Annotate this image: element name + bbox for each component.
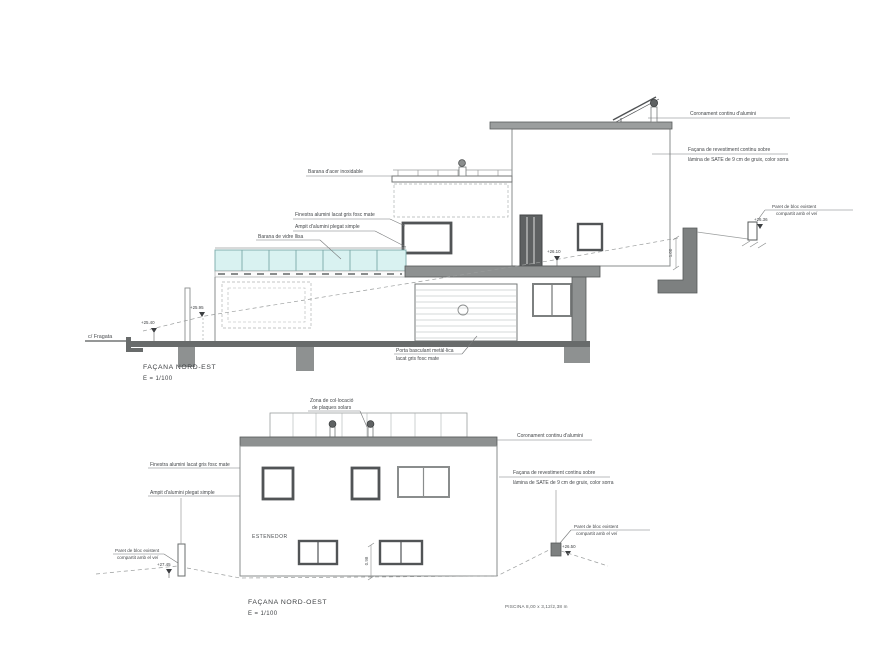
facade2-title: FAÇANA NORD-OEST — [248, 599, 327, 606]
label-ampit-text: Ampit d'alumini plegat simple — [295, 224, 360, 230]
label-ampit: Ampit d'alumini plegat simple — [293, 224, 406, 247]
label-coronament: Coronament continu d'alumini — [648, 111, 790, 118]
window-r1-a — [263, 468, 293, 499]
glass-balustrade — [215, 248, 406, 271]
label-coronament2-text: Coronament continu d'alumini — [517, 433, 583, 439]
facade1-scale: E = 1/100 — [143, 376, 173, 382]
elevation-street: +25.40 — [141, 320, 157, 341]
label-paret-right-line2: compartit amb el veí — [576, 531, 618, 536]
label-paret-left: Paret de bloc existent compartit amb el … — [113, 548, 178, 563]
terrace-slab-edge — [215, 271, 406, 277]
label-finestra-text: Finestra alumini lacat gris fosc mate — [295, 212, 375, 218]
parapet-coronament — [240, 437, 497, 446]
label-zona-line1: Zona de col·locació — [310, 398, 354, 404]
facade-nord-oest: ESTENEDOR 0.98 +27.45 Paret de bloc exis… — [96, 398, 650, 617]
garage-slab — [405, 266, 600, 277]
label-paret-left-line1: Paret de bloc existent — [115, 548, 160, 553]
label-porta-line2: lacat gris fosc mate — [396, 356, 439, 362]
elevation-neighbour-text: +26.36 — [754, 217, 768, 222]
label-ampit2-text: Ampit d'alumini plegat simple — [150, 490, 215, 496]
roof-vent3-icon — [367, 421, 374, 437]
elevation-left: +27.45 — [157, 562, 172, 578]
roof-vent-icon — [650, 99, 657, 122]
elevations-svg: 1.00 +25.40 +25.95 +26.10 — [0, 0, 872, 665]
window-r1-b — [352, 468, 379, 499]
garage-window — [533, 284, 571, 316]
label-coronament-text: Coronament continu d'alumini — [690, 111, 756, 117]
label-paret-line1: Paret de bloc existent — [772, 204, 817, 209]
label-finestra2-text: Finestra alumini lacat gris fosc mate — [150, 462, 230, 468]
roof-coronament — [490, 122, 672, 129]
dark-door — [520, 215, 542, 266]
label-porta-line1: Porta basculant metàl·lica — [396, 348, 454, 354]
window-main — [578, 224, 602, 250]
mid-roof-vent-icon — [459, 160, 466, 176]
label-coronament2: Coronament continu d'alumini — [497, 433, 592, 440]
roof-vent2-icon — [329, 421, 336, 437]
terrace-post — [185, 288, 190, 342]
elevation-terrace-text: +25.95 — [190, 305, 204, 310]
elevation-left-text: +27.45 — [157, 562, 171, 567]
label-barana-acer-text: Barana d'acer inoxidable — [308, 169, 363, 175]
terrain2-right — [561, 551, 608, 566]
terrain2-left — [96, 566, 178, 574]
facade2-scale: E = 1/100 — [248, 611, 278, 617]
drawing-sheet: 1.00 +25.40 +25.95 +26.10 — [0, 0, 872, 665]
hidden-edge-dashed — [394, 184, 508, 217]
window-mid — [403, 223, 451, 253]
elevation-mid-text: +26.10 — [547, 249, 561, 254]
left-block-wall — [178, 498, 185, 576]
label-facana: Façana de revestiment continu sobre làmi… — [652, 147, 789, 163]
right-block-wall — [551, 490, 561, 556]
label-paret-right-line1: Paret de bloc existent — [574, 524, 619, 529]
elevation-right: +26.50 — [562, 544, 576, 556]
elevation-street-text: +25.40 — [141, 320, 155, 325]
neighbour-block — [742, 222, 766, 248]
garage-side-wall — [572, 277, 586, 345]
foundation-2 — [296, 347, 314, 371]
label-finestra2: Finestra alumini lacat gris fosc mate — [148, 462, 240, 468]
terrain-to-block-line — [697, 232, 748, 239]
label-facana-line1: Façana de revestiment continu sobre — [688, 147, 770, 153]
elevation-terrace: +25.95 — [190, 305, 205, 317]
window-r1-c — [398, 467, 449, 497]
label-zona-plaques: Zona de col·locació de plaques solars — [308, 398, 367, 427]
dim-height-text: 0.98 — [364, 556, 369, 565]
piscina-note: PISCINA 8,00 x 3,12/2,38 m — [505, 604, 568, 609]
label-facana2-line1: Façana de revestiment continu sobre — [513, 470, 595, 476]
label-ampit2: Ampit d'alumini plegat simple — [148, 490, 240, 496]
facade-nord-est: 1.00 +25.40 +25.95 +26.10 — [85, 97, 853, 382]
label-paret-existent: Paret de bloc existent compartit amb el … — [757, 204, 853, 221]
mid-roof-railing — [393, 170, 512, 176]
foundation-3 — [564, 347, 590, 363]
label-facana2: Façana de revestiment continu sobre làmi… — [499, 470, 614, 486]
label-paret-left-line2: compartit amb el veí — [117, 555, 159, 560]
street-label: c/ Fragata — [88, 334, 112, 340]
lower-wall — [215, 277, 311, 342]
window-r2-a — [299, 541, 337, 564]
label-zona-line2: de plaques solars — [312, 405, 352, 411]
estenedor-label: ESTENEDOR — [252, 534, 288, 540]
label-facana-line2: làmina de SATE de 9 cm de gruix, color s… — [688, 157, 789, 163]
facade2-wall — [240, 446, 497, 576]
ground-slab — [128, 341, 590, 347]
label-barana-vidre-text: Barana de vidre llisa — [258, 234, 304, 240]
dim-wall-height-text: 1.00 — [668, 248, 673, 257]
facade1-title: FAÇANA NORD-EST — [143, 364, 216, 371]
label-paret-line2: compartit amb el veí — [776, 211, 818, 216]
window-r2-b — [380, 541, 422, 564]
mid-roof-slab — [392, 176, 512, 182]
elevation-right-text: +26.50 — [562, 544, 576, 549]
label-paret-right: Paret de bloc existent compartit amb el … — [560, 524, 650, 543]
label-barana-acer: Barana d'acer inoxidable — [306, 169, 392, 176]
garage-door — [415, 284, 517, 341]
label-facana2-line2: làmina de SATE de 9 cm de gruix, color s… — [513, 480, 614, 486]
